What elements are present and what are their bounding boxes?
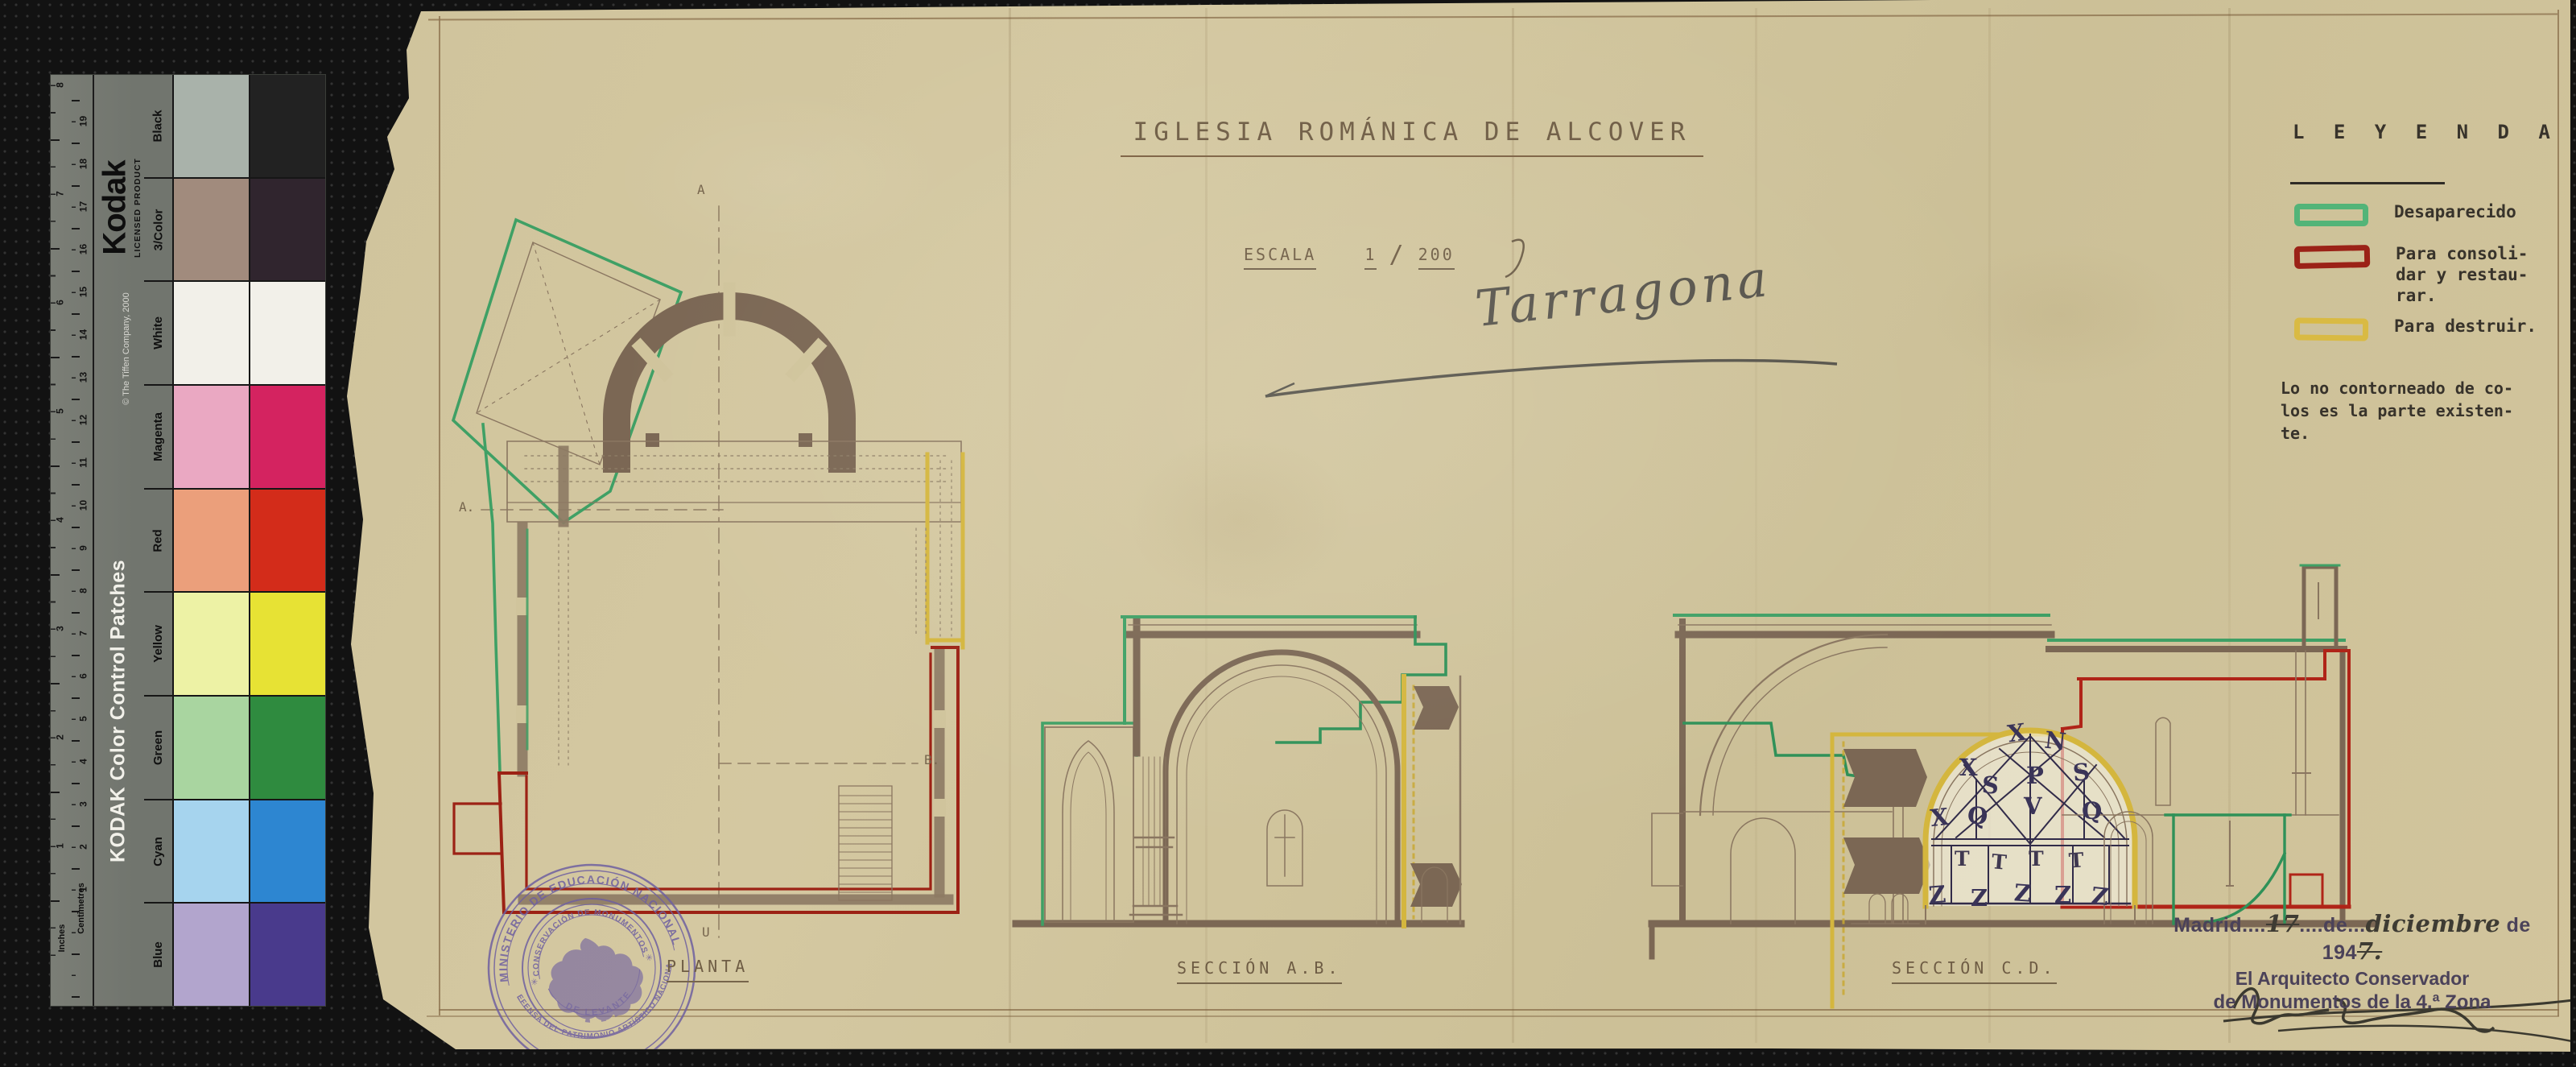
patch-row-label-cell: Cyan (144, 800, 172, 903)
scale-note: ESCALA 1 / 200 (1244, 238, 1455, 267)
patch-full (250, 179, 325, 281)
ruler-number: 14 (62, 327, 105, 343)
stamp-star-left: ✳ (530, 977, 539, 988)
kodak-logo: Kodak (97, 160, 134, 254)
legend-divider (2290, 182, 2445, 184)
date-city: Madrid (2173, 914, 2242, 937)
color-patch-rows: Black 3/Color White Magenta Red (144, 75, 325, 1006)
frame-line-bottom-2 (427, 1015, 2559, 1017)
patch-full (250, 386, 325, 488)
stamp-inner-top-text: CONSERVACIÓN DE MONUMENTOS (521, 897, 649, 978)
section-mark-u-bottom: U (702, 924, 710, 940)
drawings-linework (0, 0, 2576, 1067)
fold-line (1009, 8, 1011, 1043)
patch-row-label: Black (151, 110, 165, 142)
date-day-ink: 17 (2266, 910, 2299, 937)
stamp-inner-bottom-text: DE LEVANTE (563, 987, 638, 1024)
patch-row-label: Yellow (151, 625, 165, 663)
patch-light (174, 904, 249, 1006)
patch-full (250, 282, 325, 384)
shoring-letter-z: Z (1928, 880, 1947, 909)
legend-item-label: Desaparecido (2394, 201, 2516, 222)
date-de: de (2323, 914, 2347, 937)
section-ab-caption: SECCIÓN A.B. (1177, 958, 1342, 984)
patch-row-label: Green (151, 730, 165, 765)
legend-item: Para destruir. (2294, 316, 2537, 341)
shoring-letter: P (2026, 762, 2044, 789)
section-cd-caption: SECCIÓN C.D. (1892, 958, 2057, 984)
patch-light (174, 697, 249, 799)
licensed-product-label: LICENSED PRODUCT (133, 158, 142, 258)
legend-note: Lo no contorneado de co- los es la parte… (2281, 377, 2558, 445)
patch-row-label-cell: Red (144, 490, 172, 592)
patch-row-label: Red (151, 529, 165, 552)
scanned-document-on-black-backing: MINISTERIO DE EDUCACIÓN NACIONAL DEFENSA… (0, 0, 2576, 1067)
legend-color-swatch (2294, 317, 2368, 341)
shoring-letter-z: Z (2090, 882, 2110, 911)
shoring-letter-t: T (1991, 850, 2008, 875)
svg-text:MINISTERIO DE EDUCACIÓN NACION: MINISTERIO DE EDUCACIÓN NACIONAL (479, 855, 683, 984)
scale-numerator: 1 (1364, 245, 1377, 270)
ruler-number: 3 (62, 796, 105, 813)
section-mark-b-right: B. (924, 752, 939, 767)
fold-line (1755, 8, 1757, 1043)
patch-row-label-cell: Green (144, 697, 172, 799)
patch-row-label-cell: 3/Color (144, 179, 172, 281)
office-line-1: El Arquitecto Conservador (2151, 968, 2553, 990)
color-patch-row: Yellow (144, 593, 325, 695)
patch-light (174, 386, 249, 488)
patch-light (174, 75, 249, 177)
ruler-number: 19 (62, 114, 105, 130)
frame-line-right (2557, 10, 2559, 1016)
color-control-patches-label: KODAK Color Control Patches (107, 560, 130, 862)
patch-row-label: Cyan (151, 837, 165, 866)
ministry-rubber-stamp: MINISTERIO DE EDUCACIÓN NACIONAL DEFENSA… (471, 847, 712, 1067)
pencil-flourish (1265, 240, 1837, 396)
patch-light (174, 282, 249, 384)
legend-item-label: Para consoli- dar y restau- rar. (2396, 243, 2528, 306)
plan-caption: PLANTA (667, 957, 749, 982)
section-ab-drawing (1016, 617, 1462, 926)
stamp-star-right: ✳ (645, 953, 654, 964)
shoring-letter: N (2043, 726, 2067, 756)
patch-full (250, 904, 325, 1006)
shoring-letter: X (2006, 718, 2028, 748)
shoring-letter-z: Z (2054, 881, 2071, 908)
ruler-number: 8 (62, 583, 105, 599)
scale-denominator: 200 (1418, 245, 1455, 270)
ruler-number: 13 (62, 370, 105, 386)
svg-text:CONSERVACIÓN DE MONUMENTOS: CONSERVACIÓN DE MONUMENTOS (521, 897, 649, 978)
patch-row-label-cell: Magenta (144, 386, 172, 488)
legend-color-swatch (2294, 245, 2371, 269)
ruler-number: 8 (6, 78, 114, 93)
section-cd-drawing (1652, 565, 2375, 1007)
patch-full (250, 490, 325, 592)
color-patch-row: Cyan (144, 800, 325, 903)
architect-signature (2223, 989, 2576, 1042)
ruler-number: 11 (62, 455, 105, 471)
ruler-divider-line (93, 75, 94, 1006)
patch-row-label-cell: Yellow (144, 593, 172, 695)
patch-light (174, 593, 249, 695)
color-patch-row: 3/Color (144, 179, 325, 281)
kodak-color-control-strip: 87654321 19181716151413121110987654321 K… (50, 74, 326, 1007)
drawing-sheet: MINISTERIO DE EDUCACIÓN NACIONAL DEFENSA… (0, 0, 2576, 1067)
patch-light (174, 490, 249, 592)
shoring-letter: Q (1966, 801, 1989, 831)
patch-row-label: Blue (151, 941, 165, 968)
date-month-ink: diciembre (2366, 910, 2501, 937)
patch-light (174, 800, 249, 903)
plan-drawing (453, 206, 963, 937)
date-and-office-block: Madrid....17....de...diciembre de 1947. … (2151, 910, 2553, 1014)
section-mark-a-left: A. (459, 499, 474, 515)
patch-row-label: Magenta (151, 412, 165, 461)
sheet-title: IGLESIA ROMÁNICA DE ALCOVER (1121, 118, 1703, 157)
ruler-number: 10 (62, 498, 105, 514)
date-line: Madrid....17....de...diciembre de 1947. (2151, 910, 2553, 965)
svg-text:DE LEVANTE: DE LEVANTE (563, 987, 638, 1024)
date-year-digit-ink: 7. (2357, 937, 2382, 965)
handwritten-province: Tarragona (1472, 249, 1773, 338)
patch-full (250, 593, 325, 695)
stamp-ring-bottom-text: DEFENSA DEL PATRIMONIO ARTÍSTICO NACIONA… (471, 847, 687, 1065)
ruler-number: 15 (62, 284, 105, 300)
date-year-prefix: de 194 (2322, 914, 2531, 964)
color-patch-row: Magenta (144, 386, 325, 488)
shoring-letter-z: Z (2013, 879, 2032, 907)
frame-line-bottom (439, 1009, 2559, 1011)
shoring-letter: X (1959, 754, 1978, 781)
shoring-letter: S (1981, 771, 2000, 799)
fold-line (1205, 8, 1207, 1043)
ruler-number: 12 (62, 412, 105, 428)
fold-line (2228, 8, 2231, 1043)
color-patch-row: Black (144, 75, 325, 177)
color-patch-row: White (144, 282, 325, 384)
shoring-letter: S (2072, 758, 2091, 787)
patch-row-label: White (151, 316, 165, 349)
shoring-letter: X (1929, 803, 1950, 832)
shoring-letter: V (2024, 792, 2042, 820)
centimetres-label: Centimetres (76, 883, 86, 934)
ruler-number: 4 (6, 513, 114, 527)
patch-full (250, 75, 325, 177)
section-mark-a-top: A (697, 182, 705, 197)
ruler-number: 5 (62, 711, 105, 727)
legend-item-label: Para destruir. (2394, 316, 2537, 337)
shoring-letter-t: T (2068, 848, 2085, 872)
scale-slash: / (1389, 241, 1406, 269)
legend-color-swatch (2294, 204, 2368, 226)
patch-light (174, 179, 249, 281)
stamp-coat-of-arms (540, 928, 650, 1031)
legend-item: Para consoli- dar y restau- rar. (2294, 243, 2528, 306)
ruler-number: 6 (62, 668, 105, 684)
shoring-letter-t: T (2029, 847, 2044, 871)
color-patch-row: Red (144, 490, 325, 592)
scale-label: ESCALA (1244, 245, 1316, 270)
shoring-letter-z: Z (1971, 884, 1988, 912)
frame-line-left (439, 16, 440, 1015)
patch-full (250, 800, 325, 903)
ruler-number: 4 (62, 754, 105, 770)
office-line-2: de Monumentos de la 4.ª Zona (2151, 991, 2553, 1014)
ruler-number: 2 (6, 730, 114, 745)
legend-item: Desaparecido (2294, 201, 2516, 226)
patch-full (250, 697, 325, 799)
fold-line (1988, 8, 1991, 1043)
color-patch-row: Green (144, 697, 325, 799)
stamp-ring-top-text: MINISTERIO DE EDUCACIÓN NACIONAL (479, 855, 683, 984)
svg-text:DEFENSA DEL PATRIMONIO ARTÍSTI: DEFENSA DEL PATRIMONIO ARTÍSTICO NACIONA… (471, 847, 687, 1065)
patch-row-label-cell: White (144, 282, 172, 384)
patch-row-label-cell: Black (144, 75, 172, 177)
ruler-number: 9 (62, 540, 105, 556)
color-patch-row: Blue (144, 904, 325, 1006)
shoring-letter-t: T (1955, 847, 1970, 871)
patch-row-label: 3/Color (151, 209, 165, 250)
ruler-cm-numbers: 19181716151413121110987654321 (75, 100, 91, 911)
ruler-number: 7 (62, 626, 105, 642)
inches-label: Inches (57, 924, 67, 953)
fold-line (1512, 8, 1514, 1043)
ruler-number: 2 (62, 839, 105, 855)
patch-row-label-cell: Blue (144, 904, 172, 1006)
legend-heading: L E Y E N D A (2293, 121, 2559, 143)
shoring-letter: Q (2082, 797, 2102, 825)
frame-line-top (428, 14, 2557, 21)
copyright-label: © The Tiffen Company, 2000 (122, 292, 131, 405)
